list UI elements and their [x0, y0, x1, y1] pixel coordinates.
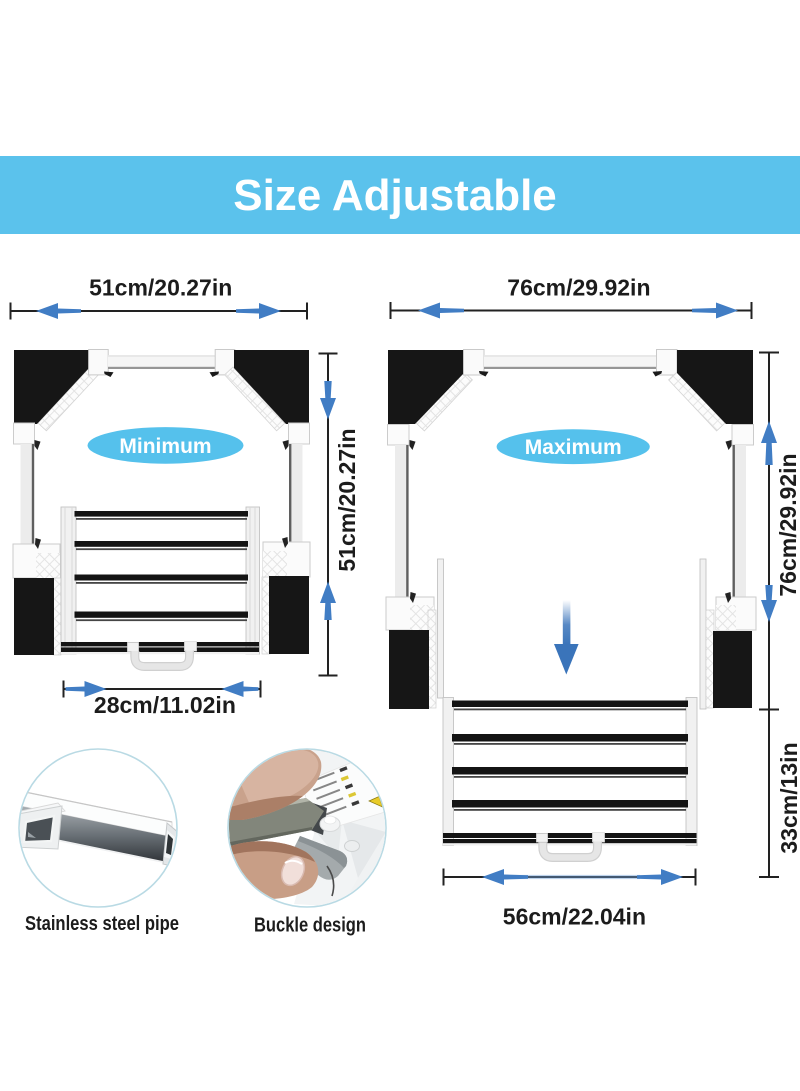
svg-text:Minimum: Minimum [119, 435, 211, 458]
svg-text:33cm/13in: 33cm/13in [776, 742, 800, 853]
svg-text:Stainless steel pipe: Stainless steel pipe [25, 913, 179, 935]
svg-text:28cm/11.02in: 28cm/11.02in [94, 692, 236, 718]
svg-text:Size Adjustable: Size Adjustable [233, 171, 557, 220]
svg-text:76cm/29.92in: 76cm/29.92in [775, 453, 800, 596]
svg-text:56cm/22.04in: 56cm/22.04in [503, 904, 646, 930]
svg-text:51cm/20.27in: 51cm/20.27in [334, 428, 360, 571]
svg-text:51cm/20.27in: 51cm/20.27in [89, 275, 232, 301]
svg-text:Buckle design: Buckle design [254, 915, 366, 937]
svg-text:Maximum: Maximum [525, 436, 622, 459]
svg-text:76cm/29.92in: 76cm/29.92in [507, 275, 650, 301]
